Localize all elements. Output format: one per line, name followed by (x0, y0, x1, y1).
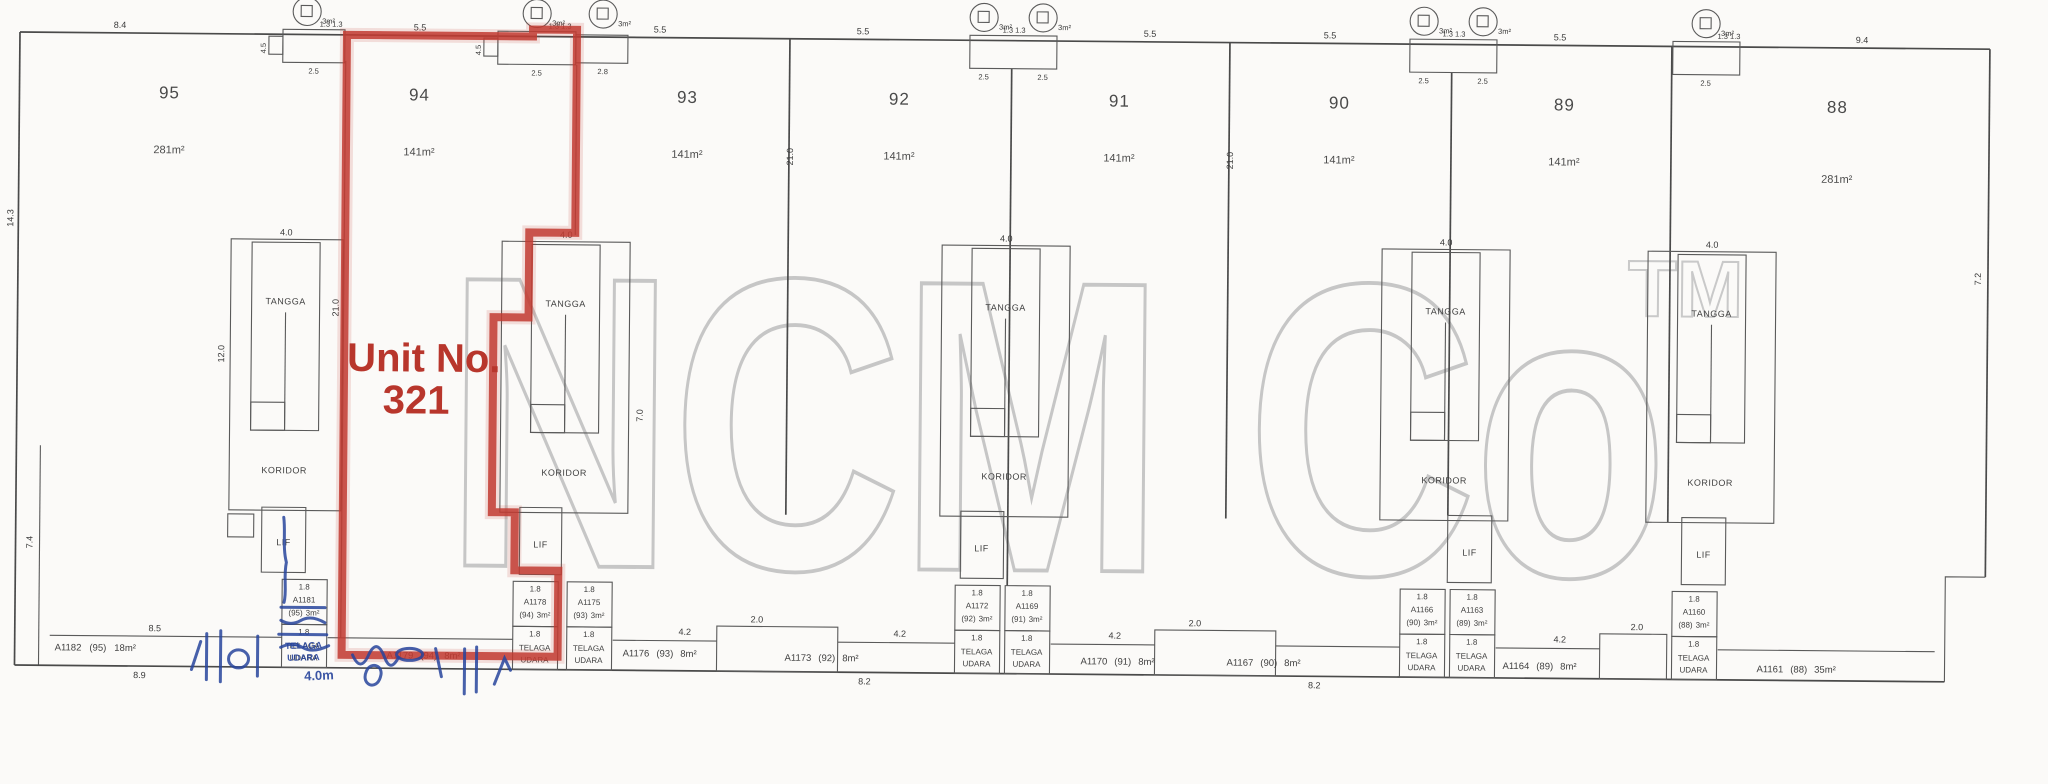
strip-label-a1164: A1164(89)8m² (1502, 661, 1576, 673)
dim-label: 7.0 (635, 409, 645, 422)
strip-unit: (91) (1114, 657, 1131, 668)
dim-label: 4.5 (259, 43, 268, 54)
shaft-unit: (92) (961, 614, 976, 623)
dim-label: 1.3 1.3 (1718, 32, 1741, 41)
lift-label: LIF (1462, 548, 1477, 558)
watermark-text: NCM Co (443, 189, 1667, 665)
strip-unit: (88) (1790, 664, 1807, 675)
shaft-udara: UDARA (1679, 666, 1708, 675)
corridor-label: KORIDOR (1421, 475, 1467, 485)
strip-unit: (89) (1536, 661, 1553, 672)
corridor-label: KORIDOR (541, 468, 587, 478)
strip-label-a1170: A1170(91)8m² (1080, 656, 1154, 668)
dim-label: 14.3 (5, 209, 15, 227)
strip-area: 8m² (842, 653, 858, 664)
unit-94-area: 141m² (403, 146, 435, 158)
dim-label: 2.5 (1037, 73, 1048, 82)
dim-label: 5.5 (1324, 30, 1337, 40)
strip-area: 8m² (680, 649, 696, 660)
vent-area-label: 3m² (618, 19, 631, 28)
scanned-floor-plan: NCM Co TM (0, 0, 2048, 784)
shaft-dim: 1.8 (1417, 592, 1429, 601)
unit-94-number: 94 (409, 85, 430, 104)
dim-label: 21.0 (785, 148, 795, 166)
dim-label: 2.5 (978, 72, 989, 81)
dim-label: 2.5 (1418, 76, 1429, 85)
strip-area: 18m² (114, 643, 136, 654)
stair-label: TANGGA (1425, 306, 1465, 316)
vent-area-label: 3m² (1498, 27, 1511, 36)
dim-label: 7.4 (24, 536, 34, 549)
shaft-dim: 1.8 (971, 633, 983, 642)
dim-label: 4.0 (1440, 237, 1453, 247)
strip-unit: (90) (1260, 658, 1277, 669)
dim-label: 8.2 (858, 676, 871, 686)
shaft-dim: 1.8 (1416, 637, 1428, 646)
dim-label: 2.0 (751, 614, 764, 624)
shaft-unit: (95) (288, 608, 303, 617)
stair-label: TANGGA (985, 302, 1025, 312)
dim-label: 1.3 1.3 (320, 20, 343, 29)
dim-label: 2.5 (531, 68, 542, 77)
strip-id: A1161 (1756, 664, 1783, 675)
watermark: NCM Co TM (443, 189, 1745, 665)
shaft-telaga: TELAGA (1678, 653, 1710, 662)
lift-label: LIF (533, 539, 548, 549)
shaft-id: A1163 (1461, 606, 1484, 615)
shaft-area: 3m² (537, 611, 551, 620)
shaft-area: 3m² (1424, 618, 1438, 627)
shaft-udara: UDARA (1012, 660, 1041, 669)
shaft-udara: UDARA (1407, 663, 1436, 672)
corridor-label: KORIDOR (981, 471, 1027, 481)
shaft-udara: UDARA (962, 659, 991, 668)
strip-unit: (93) (656, 649, 673, 660)
dim-label: 8.9 (133, 670, 146, 680)
shaft-area: 3m² (591, 611, 605, 620)
unit-95-area: 281m² (153, 144, 185, 156)
shaft-dim: 1.8 (584, 585, 596, 594)
vent-area-label: 3m² (1058, 23, 1071, 32)
unit-88-area: 281m² (1821, 174, 1853, 186)
dim-label: 4.2 (1553, 634, 1566, 644)
shaft-udara: UDARA (574, 656, 603, 665)
stair-label: TANGGA (265, 296, 305, 306)
shaft-id: A1172 (966, 601, 989, 610)
unit-no-label-line2: 321 (383, 378, 450, 423)
unit-90-area: 141m² (1323, 154, 1355, 166)
shaft-area: 3m² (1029, 615, 1043, 624)
strip-id: A1182 (55, 642, 82, 653)
strip-unit: (95) (89, 643, 106, 654)
dim-label: 4.2 (1108, 631, 1121, 641)
unit-95-number: 95 (159, 83, 180, 102)
shaft-area: 3m² (1696, 621, 1710, 630)
ink-stamp-telaga: TELAGA (285, 640, 323, 651)
unit-91-number: 91 (1109, 92, 1130, 111)
dim-label: 8.2 (1308, 680, 1321, 690)
unit-89-number: 89 (1554, 95, 1575, 114)
shaft-telaga: TELAGA (1011, 648, 1043, 657)
dim-label: 5.5 (1144, 29, 1157, 39)
shaft-id: A1175 (578, 598, 601, 607)
shaft-dim: 1.8 (1467, 593, 1479, 602)
strip-id: A1173 (785, 653, 812, 664)
strip-area: 8m² (1560, 661, 1576, 672)
shaft-unit: (91) (1011, 615, 1026, 624)
dim-label: 4.5 (474, 45, 483, 56)
stair-label: TANGGA (545, 299, 585, 309)
unit-92-number: 92 (889, 90, 910, 109)
shaft-dim: 1.8 (1022, 589, 1034, 598)
dim-label: 2.0 (1631, 622, 1644, 632)
shaft-dim: 1.8 (583, 630, 595, 639)
shaft-area: 3m² (306, 609, 320, 618)
strip-area: 8m² (1138, 657, 1154, 668)
dim-label: 4.0 (1706, 240, 1719, 250)
lift-label: LIF (1696, 550, 1711, 560)
shaft-udara: UDARA (1457, 664, 1486, 673)
shaft-id: A1178 (524, 597, 547, 606)
shaft-telaga: TELAGA (1456, 652, 1488, 661)
unit-92-area: 141m² (883, 151, 915, 163)
shaft-unit: (88) (1678, 620, 1693, 629)
shaft-telaga: TELAGA (573, 644, 605, 653)
dim-label: 12.0 (216, 345, 226, 363)
dim-label: 21.0 (1225, 152, 1235, 170)
dim-label: 2.0 (1189, 618, 1202, 628)
shaft-id: A1160 (1683, 608, 1706, 617)
dim-label: 8.4 (114, 20, 127, 30)
shaft-dim: 1.8 (1021, 634, 1033, 643)
shaft-id: A1169 (1016, 602, 1039, 611)
shaft-unit: (93) (573, 611, 588, 620)
shaft-area: 3m² (979, 614, 993, 623)
unit-no-label-line1: Unit No. (347, 336, 501, 381)
ink-stamp-udara: UDARA (287, 652, 320, 663)
unit-93-number: 93 (677, 88, 698, 107)
floor-plan-svg: NCM Co TM (0, 0, 2048, 784)
shaft-telaga: TELAGA (961, 647, 993, 656)
shaft-dim: 1.8 (1689, 595, 1701, 604)
unit-90-number: 90 (1329, 93, 1350, 112)
shaft-telaga: TELAGA (1406, 651, 1438, 660)
shaft-area: 3m² (1474, 619, 1488, 628)
strip-area: 35m² (1814, 665, 1836, 676)
strip-label-a1161: A1161(88)35m² (1756, 664, 1835, 676)
dim-label: 2.5 (1700, 79, 1711, 88)
dim-label: 5.5 (1554, 32, 1567, 42)
lift-label: LIF (974, 543, 989, 553)
shaft-dim: 1.8 (1688, 640, 1700, 649)
dim-label: 2.8 (597, 67, 608, 76)
shaft-unit: (90) (1406, 618, 1421, 627)
shaft-id: A1166 (1411, 605, 1434, 614)
strip-label-a1167: A1167(90)8m² (1226, 658, 1300, 670)
dim-label: 4.0 (1000, 234, 1013, 244)
shaft-id: A1181 (293, 595, 316, 604)
stair-label: TANGGA (1691, 309, 1731, 319)
unit-91-area: 141m² (1103, 152, 1135, 164)
strip-id: A1167 (1226, 658, 1253, 669)
dim-label: 4.2 (893, 629, 906, 639)
unit-89-area: 141m² (1548, 156, 1580, 168)
corridor-label: KORIDOR (1687, 478, 1733, 488)
shaft-dim: 1.8 (299, 582, 311, 591)
strip-label-a1173: A1173(92)8m² (785, 653, 859, 665)
strip-id: A1176 (623, 648, 650, 659)
dim-label: 2.5 (308, 67, 319, 76)
shaft-unit: (89) (1456, 619, 1471, 628)
dim-label: 9.4 (1856, 35, 1869, 45)
unit-88-number: 88 (1827, 98, 1848, 117)
dim-label: 1.3 1.3 (1003, 26, 1026, 35)
strip-label-a1176: A1176(93)8m² (623, 648, 697, 660)
shaft-dim: 1.8 (530, 584, 542, 593)
dim-label: 4.2 (678, 627, 691, 637)
shaft-dim: 1.8 (972, 588, 984, 597)
unit-93-area: 141m² (671, 149, 703, 161)
dim-label: 5.5 (654, 25, 667, 35)
watermark-tm: TM (1627, 244, 1743, 334)
dim-label: 1.3 1.3 (1443, 29, 1466, 38)
dim-label: 8.5 (149, 623, 162, 633)
strip-id: A1164 (1502, 661, 1529, 672)
strip-id: A1170 (1080, 656, 1107, 667)
corridor-label: KORIDOR (261, 465, 307, 475)
strip-unit: (92) (818, 653, 835, 664)
shaft-unit: (94) (519, 610, 534, 619)
strip-area: 8m² (1284, 658, 1300, 669)
shaft-dim: 1.8 (529, 629, 541, 638)
dim-label: 5.5 (857, 26, 870, 36)
strip-label-a1182: A1182(95)18m² (55, 642, 136, 654)
dim-label: 7.2 (1973, 273, 1983, 286)
shaft-dim: 1.8 (1466, 638, 1478, 647)
dim-label: 2.5 (1477, 77, 1488, 86)
dim-label: 4.0 (280, 227, 293, 237)
ink-note: 4.0m (304, 667, 334, 683)
